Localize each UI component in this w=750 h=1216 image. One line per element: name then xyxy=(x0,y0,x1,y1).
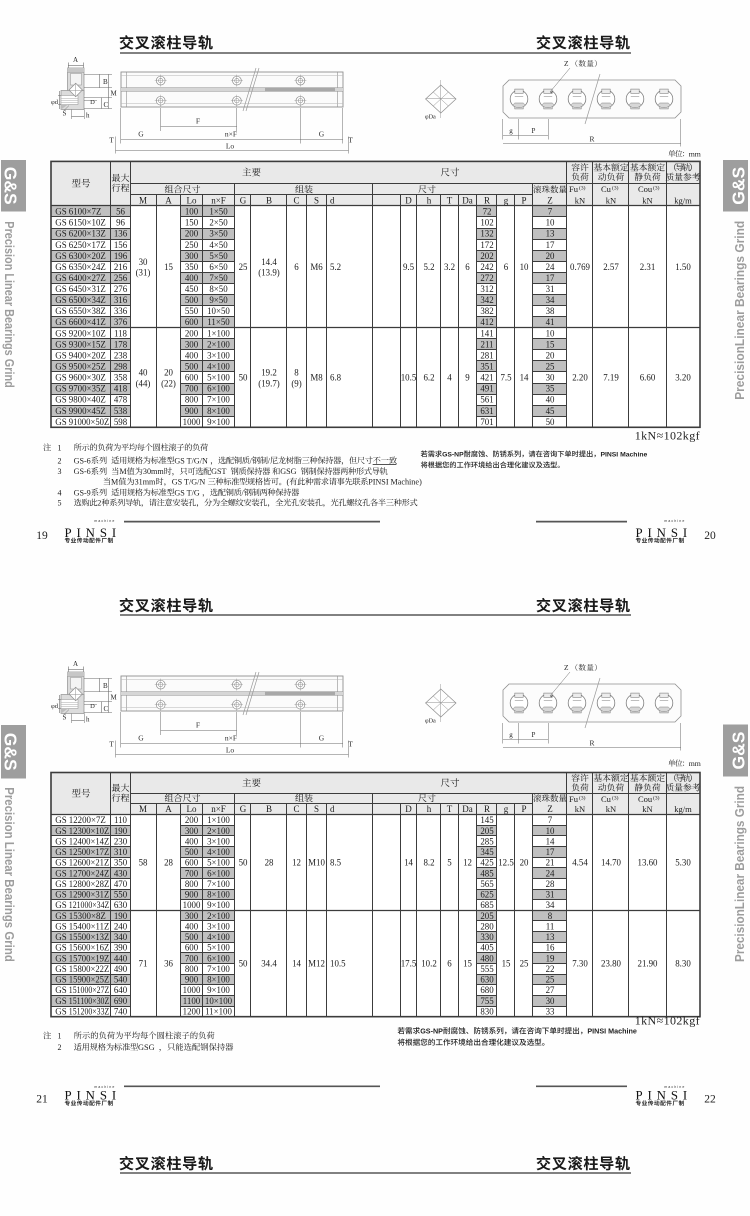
svg-text:600: 600 xyxy=(185,373,199,383)
svg-text:30mm: 30mm xyxy=(143,467,164,476)
svg-text:25: 25 xyxy=(546,975,555,985)
svg-text:150: 150 xyxy=(185,218,199,228)
svg-text:336: 336 xyxy=(114,306,128,316)
svg-text:190: 190 xyxy=(114,911,128,921)
svg-text:1200: 1200 xyxy=(183,1006,201,1016)
svg-text:10×100: 10×100 xyxy=(205,996,233,1006)
svg-text:9300×15Z: 9300×15Z xyxy=(69,339,106,349)
svg-text:φd: φd xyxy=(51,99,59,106)
svg-text:17.5: 17.5 xyxy=(401,959,417,969)
svg-text:GS: GS xyxy=(55,295,66,305)
svg-text:C: C xyxy=(104,101,109,109)
svg-text:21: 21 xyxy=(546,858,555,868)
svg-text:300: 300 xyxy=(185,251,199,261)
svg-text:312: 312 xyxy=(480,284,493,294)
svg-text:5.2: 5.2 xyxy=(330,262,341,272)
svg-text:GS: GS xyxy=(55,406,66,416)
svg-text:340: 340 xyxy=(114,932,128,942)
svg-text:9200×10Z: 9200×10Z xyxy=(69,328,106,338)
svg-text:GS: GS xyxy=(55,284,66,294)
svg-text:630: 630 xyxy=(114,900,128,910)
svg-text:8×100: 8×100 xyxy=(207,406,230,416)
svg-text:598: 598 xyxy=(114,417,128,427)
svg-text:Precision Linear Bearings Grin: Precision Linear Bearings Grind xyxy=(2,221,16,387)
svg-text:418: 418 xyxy=(114,384,128,394)
svg-text:P: P xyxy=(521,195,526,205)
svg-text:11×50: 11×50 xyxy=(207,317,230,327)
svg-text:24: 24 xyxy=(546,868,555,878)
svg-text:14: 14 xyxy=(546,836,555,846)
svg-text:h: h xyxy=(427,195,432,205)
svg-text:GS: GS xyxy=(55,306,66,316)
svg-text:h: h xyxy=(86,716,90,724)
svg-text:700: 700 xyxy=(185,953,199,963)
svg-text:12700×24Z: 12700×24Z xyxy=(69,868,110,878)
svg-text:6.2: 6.2 xyxy=(423,373,434,383)
svg-text:14.4: 14.4 xyxy=(261,257,277,267)
svg-text:242: 242 xyxy=(480,262,493,272)
svg-text:M: M xyxy=(139,195,147,205)
svg-text:425: 425 xyxy=(480,858,494,868)
svg-text:14: 14 xyxy=(292,959,301,969)
svg-text:12.5: 12.5 xyxy=(498,858,514,868)
svg-text:machine: machine xyxy=(94,519,115,523)
svg-text:kN: kN xyxy=(642,804,652,814)
svg-text:GS T/G/N: GS T/G/N xyxy=(172,478,206,487)
svg-text:376: 376 xyxy=(114,317,128,327)
svg-text:50: 50 xyxy=(239,959,248,969)
svg-text:machine: machine xyxy=(664,519,685,523)
svg-text:58: 58 xyxy=(139,858,148,868)
svg-text:g: g xyxy=(504,195,509,205)
svg-text:M: M xyxy=(111,90,118,98)
svg-text:17: 17 xyxy=(546,240,555,250)
svg-text:19.2: 19.2 xyxy=(261,367,277,377)
svg-text:3.2: 3.2 xyxy=(444,262,455,272)
svg-text:680: 680 xyxy=(480,985,494,995)
svg-text:15400×11Z: 15400×11Z xyxy=(69,921,110,931)
svg-text:Lo: Lo xyxy=(187,804,197,814)
svg-text:561: 561 xyxy=(480,395,493,405)
svg-text:g: g xyxy=(509,127,513,135)
svg-text:690: 690 xyxy=(114,996,128,1006)
svg-text:9600×30Z: 9600×30Z xyxy=(69,373,106,383)
svg-text:12400×14Z: 12400×14Z xyxy=(69,836,110,846)
svg-text:12600×21Z: 12600×21Z xyxy=(69,858,110,868)
svg-text:GS: GS xyxy=(55,879,66,889)
svg-text:Z: Z xyxy=(547,195,553,205)
svg-text:12500×17Z: 12500×17Z xyxy=(69,847,110,857)
svg-text:φDa: φDa xyxy=(425,718,436,725)
svg-text:478: 478 xyxy=(114,395,128,405)
svg-text:565: 565 xyxy=(480,879,494,889)
svg-text:6.8: 6.8 xyxy=(330,373,342,383)
svg-text:M: M xyxy=(111,694,118,702)
svg-text:72: 72 xyxy=(483,207,492,217)
svg-text:B: B xyxy=(103,78,108,86)
svg-text:10.5: 10.5 xyxy=(330,959,346,969)
svg-text:23.80: 23.80 xyxy=(601,959,622,969)
svg-text:G&S: G&S xyxy=(0,167,20,205)
svg-text:B: B xyxy=(266,195,272,205)
svg-text:(3): (3) xyxy=(579,184,586,191)
svg-text:7.30: 7.30 xyxy=(572,959,588,969)
svg-text:300: 300 xyxy=(185,911,199,921)
svg-text:kg/m: kg/m xyxy=(674,804,692,814)
svg-text:625: 625 xyxy=(480,890,494,900)
svg-text:M: M xyxy=(119,467,126,476)
svg-text:GS: GS xyxy=(55,911,66,921)
svg-text:GS-6: GS-6 xyxy=(74,456,91,465)
svg-text:R: R xyxy=(484,804,490,814)
svg-text:6450×31Z: 6450×31Z xyxy=(69,284,106,294)
svg-text:1kN≈102kgf: 1kN≈102kgf xyxy=(635,1014,700,1028)
svg-text:6: 6 xyxy=(504,262,509,272)
svg-text:631: 631 xyxy=(480,406,493,416)
svg-text:GS: GS xyxy=(55,417,66,427)
svg-text:A: A xyxy=(73,660,78,668)
svg-text:GSG: GSG xyxy=(138,1043,155,1052)
svg-text:PINSI: PINSI xyxy=(65,1088,122,1102)
svg-text:8: 8 xyxy=(294,367,299,377)
svg-text:6.60: 6.60 xyxy=(640,373,656,383)
svg-text:G&S: G&S xyxy=(729,732,749,770)
svg-text:34.4: 34.4 xyxy=(261,959,277,969)
svg-text:8.5: 8.5 xyxy=(330,858,342,868)
svg-text:9700×35Z: 9700×35Z xyxy=(69,384,106,394)
svg-text:28: 28 xyxy=(164,858,173,868)
svg-text:298: 298 xyxy=(114,362,128,372)
svg-text:15: 15 xyxy=(546,339,555,349)
svg-text:8.30: 8.30 xyxy=(675,959,691,969)
svg-text:6400×27Z: 6400×27Z xyxy=(69,273,106,283)
svg-text:6×50: 6×50 xyxy=(209,262,228,272)
svg-text:T: T xyxy=(447,804,453,814)
svg-text:412: 412 xyxy=(480,317,493,327)
svg-text:500: 500 xyxy=(185,932,199,942)
svg-text:kN: kN xyxy=(606,804,616,814)
svg-text:A: A xyxy=(165,804,172,814)
svg-text:1×100: 1×100 xyxy=(207,815,230,825)
svg-text:6500×34Z: 6500×34Z xyxy=(69,295,106,305)
svg-text:400: 400 xyxy=(185,350,199,360)
svg-text:(3): (3) xyxy=(579,794,586,801)
svg-text:9: 9 xyxy=(465,373,470,383)
svg-text:PINSI: PINSI xyxy=(636,526,693,540)
svg-text:2×100: 2×100 xyxy=(207,339,230,349)
svg-text:Cou: Cou xyxy=(638,794,653,804)
svg-text:540: 540 xyxy=(114,975,128,985)
svg-text:(3): (3) xyxy=(653,794,660,801)
svg-text:250: 250 xyxy=(185,240,199,250)
svg-text:8: 8 xyxy=(548,911,553,921)
svg-text:15300×8Z: 15300×8Z xyxy=(69,911,106,921)
svg-text:14.70: 14.70 xyxy=(601,858,622,868)
svg-text:200: 200 xyxy=(185,815,199,825)
svg-text:T: T xyxy=(109,136,114,145)
svg-text:110: 110 xyxy=(114,815,128,825)
svg-text:33: 33 xyxy=(546,1006,555,1016)
svg-text:Da: Da xyxy=(462,804,473,814)
svg-text:4×100: 4×100 xyxy=(207,932,230,942)
svg-text:800: 800 xyxy=(185,395,199,405)
svg-text:R: R xyxy=(589,135,594,144)
svg-text:7×100: 7×100 xyxy=(207,395,230,405)
svg-text:M12: M12 xyxy=(308,959,325,969)
svg-text:15800×22Z: 15800×22Z xyxy=(69,964,110,974)
svg-text:GS: GS xyxy=(55,218,66,228)
svg-text:GS: GS xyxy=(55,975,66,985)
svg-text:kN: kN xyxy=(606,195,616,205)
svg-text:PrecisionLinear Bearings Grind: PrecisionLinear Bearings Grind xyxy=(733,786,747,962)
svg-text:121000×34Z: 121000×34Z xyxy=(69,900,110,910)
svg-text:190: 190 xyxy=(114,826,128,836)
svg-text:6: 6 xyxy=(447,959,452,969)
svg-text:7: 7 xyxy=(548,815,553,825)
svg-text:C: C xyxy=(293,195,299,205)
svg-text:430: 430 xyxy=(114,868,128,878)
svg-text:Lo: Lo xyxy=(187,195,197,205)
svg-text:12300×10Z: 12300×10Z xyxy=(69,826,110,836)
svg-text:GS: GS xyxy=(55,921,66,931)
svg-text:10×50: 10×50 xyxy=(207,306,230,316)
svg-text:900: 900 xyxy=(185,890,199,900)
svg-text:mm: mm xyxy=(689,150,701,159)
svg-text:1: 1 xyxy=(58,443,62,452)
svg-text:470: 470 xyxy=(114,879,128,889)
svg-text:440: 440 xyxy=(114,953,128,963)
svg-text:mm: mm xyxy=(689,759,701,768)
svg-text:256: 256 xyxy=(114,273,128,283)
svg-text:156: 156 xyxy=(114,240,128,250)
svg-text:740: 740 xyxy=(114,1006,128,1016)
svg-text:700: 700 xyxy=(185,868,199,878)
svg-text:490: 490 xyxy=(114,964,128,974)
svg-text:10: 10 xyxy=(546,218,555,228)
svg-text:4: 4 xyxy=(58,488,62,497)
svg-text:φd: φd xyxy=(51,703,59,710)
svg-text:25: 25 xyxy=(239,262,248,272)
svg-text:GS: GS xyxy=(55,384,66,394)
svg-text:19: 19 xyxy=(36,530,48,542)
svg-text:151200×33Z: 151200×33Z xyxy=(69,1006,110,1016)
svg-text:31mm: 31mm xyxy=(135,478,156,487)
svg-text:118: 118 xyxy=(114,328,128,338)
svg-text:2: 2 xyxy=(97,499,101,508)
svg-text:300: 300 xyxy=(185,826,199,836)
svg-text:R: R xyxy=(589,739,594,748)
svg-text:GS: GS xyxy=(55,328,66,338)
svg-text:6: 6 xyxy=(465,262,470,272)
svg-text:205: 205 xyxy=(480,826,494,836)
svg-text:(31): (31) xyxy=(136,268,151,278)
svg-text:M: M xyxy=(111,478,118,487)
svg-text:): ) xyxy=(419,478,422,487)
svg-text:2: 2 xyxy=(58,1043,62,1052)
svg-text:830: 830 xyxy=(480,1006,494,1016)
svg-text:A: A xyxy=(73,56,78,64)
svg-text:(3): (3) xyxy=(612,794,619,801)
svg-text:12800×28Z: 12800×28Z xyxy=(69,879,110,889)
svg-text:450: 450 xyxy=(185,284,199,294)
svg-text:GS: GS xyxy=(55,826,66,836)
svg-text:7: 7 xyxy=(548,207,553,217)
svg-text:50: 50 xyxy=(239,373,248,383)
svg-text:350: 350 xyxy=(114,858,128,868)
svg-text:28: 28 xyxy=(546,879,555,889)
svg-text:240: 240 xyxy=(114,921,128,931)
svg-text:5: 5 xyxy=(58,499,62,508)
svg-text:T: T xyxy=(348,136,353,145)
svg-text:400: 400 xyxy=(185,273,199,283)
svg-text:13.60: 13.60 xyxy=(638,858,659,868)
svg-text:300: 300 xyxy=(185,339,199,349)
svg-text:5: 5 xyxy=(447,858,452,868)
svg-text:9500×25Z: 9500×25Z xyxy=(69,362,106,372)
svg-text:h: h xyxy=(86,112,90,120)
svg-text:50: 50 xyxy=(546,417,555,427)
svg-text:D: D xyxy=(90,703,95,710)
svg-text:GS: GS xyxy=(55,1006,66,1016)
svg-text:211: 211 xyxy=(481,339,494,349)
svg-text:600: 600 xyxy=(185,317,199,327)
svg-text:1: 1 xyxy=(58,1032,62,1041)
svg-text:9.5: 9.5 xyxy=(403,262,415,272)
svg-text:GS: GS xyxy=(55,240,66,250)
svg-text:Fu: Fu xyxy=(569,794,579,804)
svg-text:PINSI Machine: PINSI Machine xyxy=(587,1027,637,1036)
svg-text:41: 41 xyxy=(546,317,555,327)
svg-text:15: 15 xyxy=(164,262,173,272)
svg-text:35: 35 xyxy=(546,384,555,394)
svg-text:4×50: 4×50 xyxy=(209,240,228,250)
svg-text:6300×20Z: 6300×20Z xyxy=(69,251,106,261)
svg-text:141: 141 xyxy=(480,328,493,338)
svg-text:9×100: 9×100 xyxy=(207,417,230,427)
svg-text:22: 22 xyxy=(546,964,555,974)
svg-text:F: F xyxy=(196,721,200,730)
svg-text:145: 145 xyxy=(480,815,494,825)
svg-text:555: 555 xyxy=(480,964,494,974)
svg-text:2×100: 2×100 xyxy=(207,911,230,921)
svg-text:20: 20 xyxy=(520,858,529,868)
svg-text:56: 56 xyxy=(116,207,125,217)
svg-text:7×100: 7×100 xyxy=(207,964,230,974)
svg-text:276: 276 xyxy=(114,284,128,294)
svg-text:kN: kN xyxy=(575,804,585,814)
svg-text:6100×7Z: 6100×7Z xyxy=(69,207,102,217)
svg-text:M10: M10 xyxy=(308,858,325,868)
svg-text:G: G xyxy=(319,734,325,743)
svg-text:GS-NP: GS-NP xyxy=(420,1027,443,1036)
svg-text:6350×24Z: 6350×24Z xyxy=(69,262,106,272)
svg-text:Cu: Cu xyxy=(601,184,612,194)
svg-text:480: 480 xyxy=(480,953,494,963)
svg-text:36: 36 xyxy=(164,959,173,969)
svg-text:151000×27Z: 151000×27Z xyxy=(69,985,110,995)
svg-text:316: 316 xyxy=(114,295,128,305)
svg-text:10: 10 xyxy=(520,262,529,272)
svg-text:(3): (3) xyxy=(653,184,660,191)
svg-text:4×100: 4×100 xyxy=(207,847,230,857)
svg-text:205: 205 xyxy=(480,911,494,921)
svg-text:38: 38 xyxy=(546,306,555,316)
svg-text:5×100: 5×100 xyxy=(207,373,230,383)
svg-text:GST: GST xyxy=(211,467,226,476)
svg-text:10: 10 xyxy=(546,328,555,338)
svg-text:G: G xyxy=(240,804,247,814)
svg-text:Lo: Lo xyxy=(226,142,235,151)
svg-text:485: 485 xyxy=(480,868,494,878)
svg-text:550: 550 xyxy=(185,306,199,316)
svg-text:GS T/G/N: GS T/G/N xyxy=(174,456,208,465)
svg-text:S: S xyxy=(63,110,67,118)
svg-text:P: P xyxy=(532,731,536,739)
svg-text:19: 19 xyxy=(546,953,555,963)
svg-text:GS: GS xyxy=(55,985,66,995)
svg-text:1kN≈102kgf: 1kN≈102kgf xyxy=(635,429,700,443)
svg-text:GS: GS xyxy=(55,953,66,963)
svg-text:31: 31 xyxy=(546,890,555,900)
svg-text:7.5: 7.5 xyxy=(500,373,512,383)
svg-text:GS: GS xyxy=(55,847,66,857)
svg-text:GS T/G: GS T/G xyxy=(174,488,199,497)
svg-text:136: 136 xyxy=(114,229,128,239)
svg-text:6×100: 6×100 xyxy=(207,868,230,878)
svg-text:6: 6 xyxy=(294,262,299,272)
svg-text:GS: GS xyxy=(55,932,66,942)
svg-text:96: 96 xyxy=(116,218,125,228)
svg-text:281: 281 xyxy=(480,350,493,360)
svg-text:PrecisionLinear Bearings Grind: PrecisionLinear Bearings Grind xyxy=(733,221,747,400)
svg-text:20: 20 xyxy=(546,350,555,360)
svg-text:d: d xyxy=(330,195,335,205)
svg-text:G&S: G&S xyxy=(0,733,20,771)
svg-text:12900×31Z: 12900×31Z xyxy=(69,890,110,900)
svg-text:700: 700 xyxy=(185,384,199,394)
svg-text:n×F: n×F xyxy=(225,734,237,743)
svg-text:7×100: 7×100 xyxy=(207,879,230,889)
svg-text:1×100: 1×100 xyxy=(207,328,230,338)
svg-text:T: T xyxy=(348,740,353,749)
svg-text:2.57: 2.57 xyxy=(603,262,619,272)
svg-text:200: 200 xyxy=(185,328,199,338)
svg-text:20: 20 xyxy=(164,367,173,377)
svg-text:8×100: 8×100 xyxy=(207,975,230,985)
svg-text:27: 27 xyxy=(546,985,555,995)
svg-text:900: 900 xyxy=(185,406,199,416)
svg-text:390: 390 xyxy=(114,943,128,953)
svg-text:4.54: 4.54 xyxy=(572,858,588,868)
svg-text:(19.7): (19.7) xyxy=(258,378,279,388)
svg-text:421: 421 xyxy=(480,373,493,383)
svg-text:PINSI Machine: PINSI Machine xyxy=(600,452,647,459)
svg-text:P: P xyxy=(521,804,526,814)
svg-text:GS: GS xyxy=(55,890,66,900)
svg-text:5×50: 5×50 xyxy=(209,251,228,261)
svg-text:4×100: 4×100 xyxy=(207,362,230,372)
svg-text:4: 4 xyxy=(447,373,452,383)
svg-text:45: 45 xyxy=(546,406,555,416)
svg-text:91000×50Z: 91000×50Z xyxy=(69,417,110,427)
svg-text:285: 285 xyxy=(480,836,494,846)
svg-text:12: 12 xyxy=(292,858,301,868)
svg-text:2.20: 2.20 xyxy=(572,373,588,383)
svg-text:900: 900 xyxy=(185,975,199,985)
svg-text:D: D xyxy=(405,195,412,205)
svg-text:350: 350 xyxy=(185,262,199,272)
svg-text:538: 538 xyxy=(114,406,128,416)
